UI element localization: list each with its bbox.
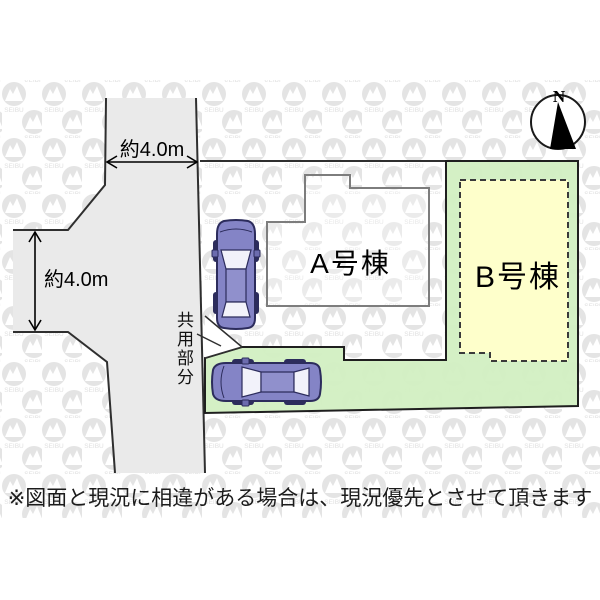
shared-area-label: 共用部分 [175,311,192,387]
site-plan-canvas: SEIBU SEIBU [0,0,600,600]
parked-car-horizontal [212,358,321,406]
compass-north-label: N [543,87,575,107]
disclaimer-text: ※図面と現況に相違がある場合は、現況優先とさせて頂きます [0,482,600,512]
road-width-dimension-top: 約4.0m [103,133,201,162]
road-width-dimension-left: 約4.0m [44,263,108,292]
building-a-label: A号棟 [288,242,413,282]
building-b-label: B号棟 [453,252,583,296]
parked-car-vertical [212,220,260,329]
